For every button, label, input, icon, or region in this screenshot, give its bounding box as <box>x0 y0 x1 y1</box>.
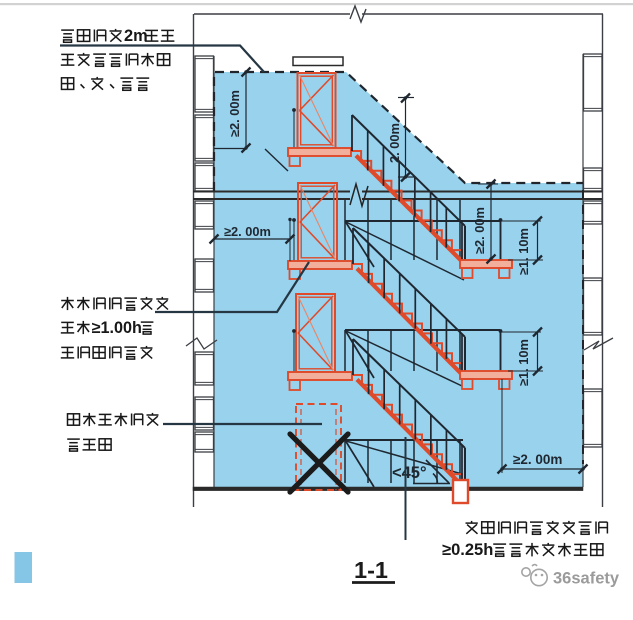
svg-text:1-1: 1-1 <box>354 557 388 583</box>
svg-text:≥1. 10m: ≥1. 10m <box>516 339 531 386</box>
svg-text:2m: 2m <box>124 27 148 45</box>
svg-text:≥1. 10m: ≥1. 10m <box>516 228 531 275</box>
svg-text:<45°: <45° <box>392 464 427 482</box>
svg-text:≥2. 00m: ≥2. 00m <box>472 207 487 254</box>
svg-text:≥1.00h: ≥1.00h <box>92 319 142 337</box>
svg-text:≥2. 00m: ≥2. 00m <box>513 452 562 467</box>
svg-text:36safety: 36safety <box>553 570 620 588</box>
svg-text:2. 00m: 2. 00m <box>387 123 402 163</box>
svg-text:≥2. 00m: ≥2. 00m <box>227 90 242 137</box>
svg-text:≥2. 00m: ≥2. 00m <box>224 224 271 239</box>
svg-text:≥0.25h: ≥0.25h <box>442 540 493 559</box>
